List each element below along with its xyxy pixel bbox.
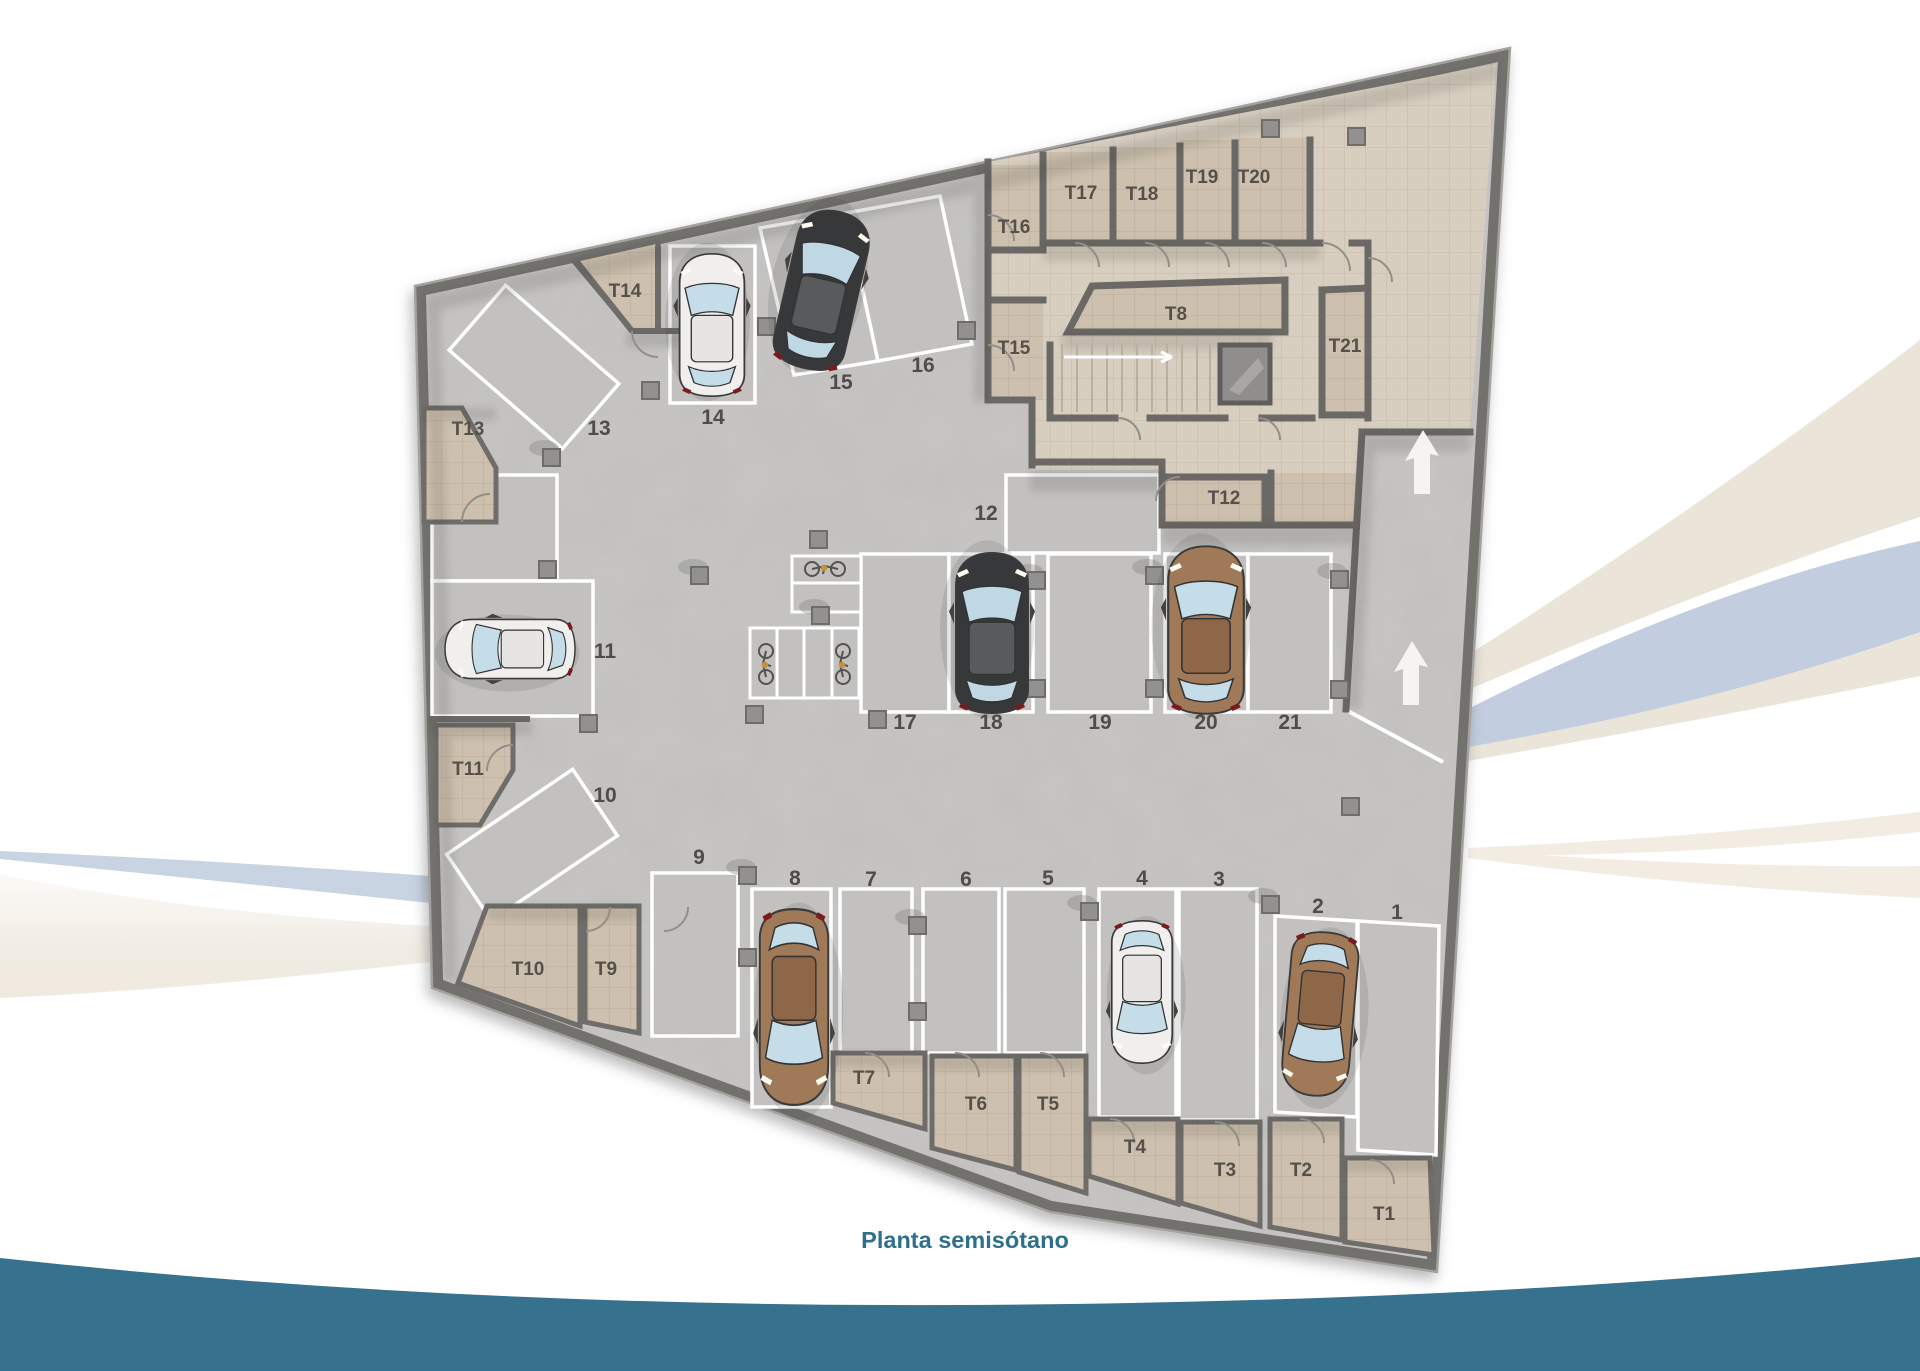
- svg-text:18: 18: [979, 711, 1003, 734]
- svg-text:T15: T15: [998, 338, 1031, 359]
- svg-text:1: 1: [1391, 901, 1403, 924]
- svg-text:16: 16: [911, 354, 934, 377]
- svg-text:T18: T18: [1126, 184, 1159, 205]
- svg-text:T14: T14: [609, 281, 642, 302]
- svg-text:7: 7: [865, 868, 877, 891]
- svg-text:T8: T8: [1165, 304, 1187, 325]
- svg-text:T20: T20: [1238, 167, 1271, 188]
- svg-text:T16: T16: [998, 217, 1031, 238]
- svg-text:T1: T1: [1373, 1204, 1396, 1225]
- svg-text:12: 12: [974, 502, 997, 525]
- svg-text:6: 6: [960, 868, 972, 891]
- svg-text:T6: T6: [965, 1094, 987, 1115]
- svg-text:8: 8: [789, 867, 801, 890]
- svg-text:14: 14: [701, 406, 725, 429]
- svg-text:Planta semisótano: Planta semisótano: [861, 1227, 1069, 1253]
- svg-text:5: 5: [1042, 867, 1054, 890]
- svg-text:T4: T4: [1124, 1137, 1147, 1158]
- svg-text:9: 9: [693, 846, 705, 869]
- svg-text:10: 10: [593, 784, 616, 807]
- svg-text:21: 21: [1278, 711, 1302, 734]
- svg-text:13: 13: [587, 417, 610, 440]
- svg-text:T7: T7: [853, 1068, 875, 1089]
- svg-text:T19: T19: [1186, 167, 1219, 188]
- svg-text:T5: T5: [1037, 1094, 1060, 1115]
- svg-text:T9: T9: [595, 959, 617, 980]
- svg-text:17: 17: [893, 711, 916, 734]
- svg-text:T21: T21: [1329, 336, 1362, 357]
- svg-text:T17: T17: [1065, 183, 1098, 204]
- svg-text:11: 11: [594, 640, 617, 663]
- svg-text:T2: T2: [1290, 1160, 1312, 1181]
- svg-text:T3: T3: [1214, 1160, 1236, 1181]
- svg-text:T10: T10: [512, 959, 545, 980]
- svg-text:19: 19: [1088, 711, 1111, 734]
- svg-text:4: 4: [1136, 867, 1148, 890]
- svg-text:15: 15: [829, 371, 853, 394]
- svg-text:3: 3: [1213, 868, 1225, 891]
- svg-text:20: 20: [1194, 711, 1217, 734]
- svg-text:2: 2: [1312, 895, 1324, 918]
- svg-text:T11: T11: [452, 759, 484, 780]
- svg-text:T12: T12: [1208, 488, 1241, 509]
- svg-text:T13: T13: [452, 419, 485, 440]
